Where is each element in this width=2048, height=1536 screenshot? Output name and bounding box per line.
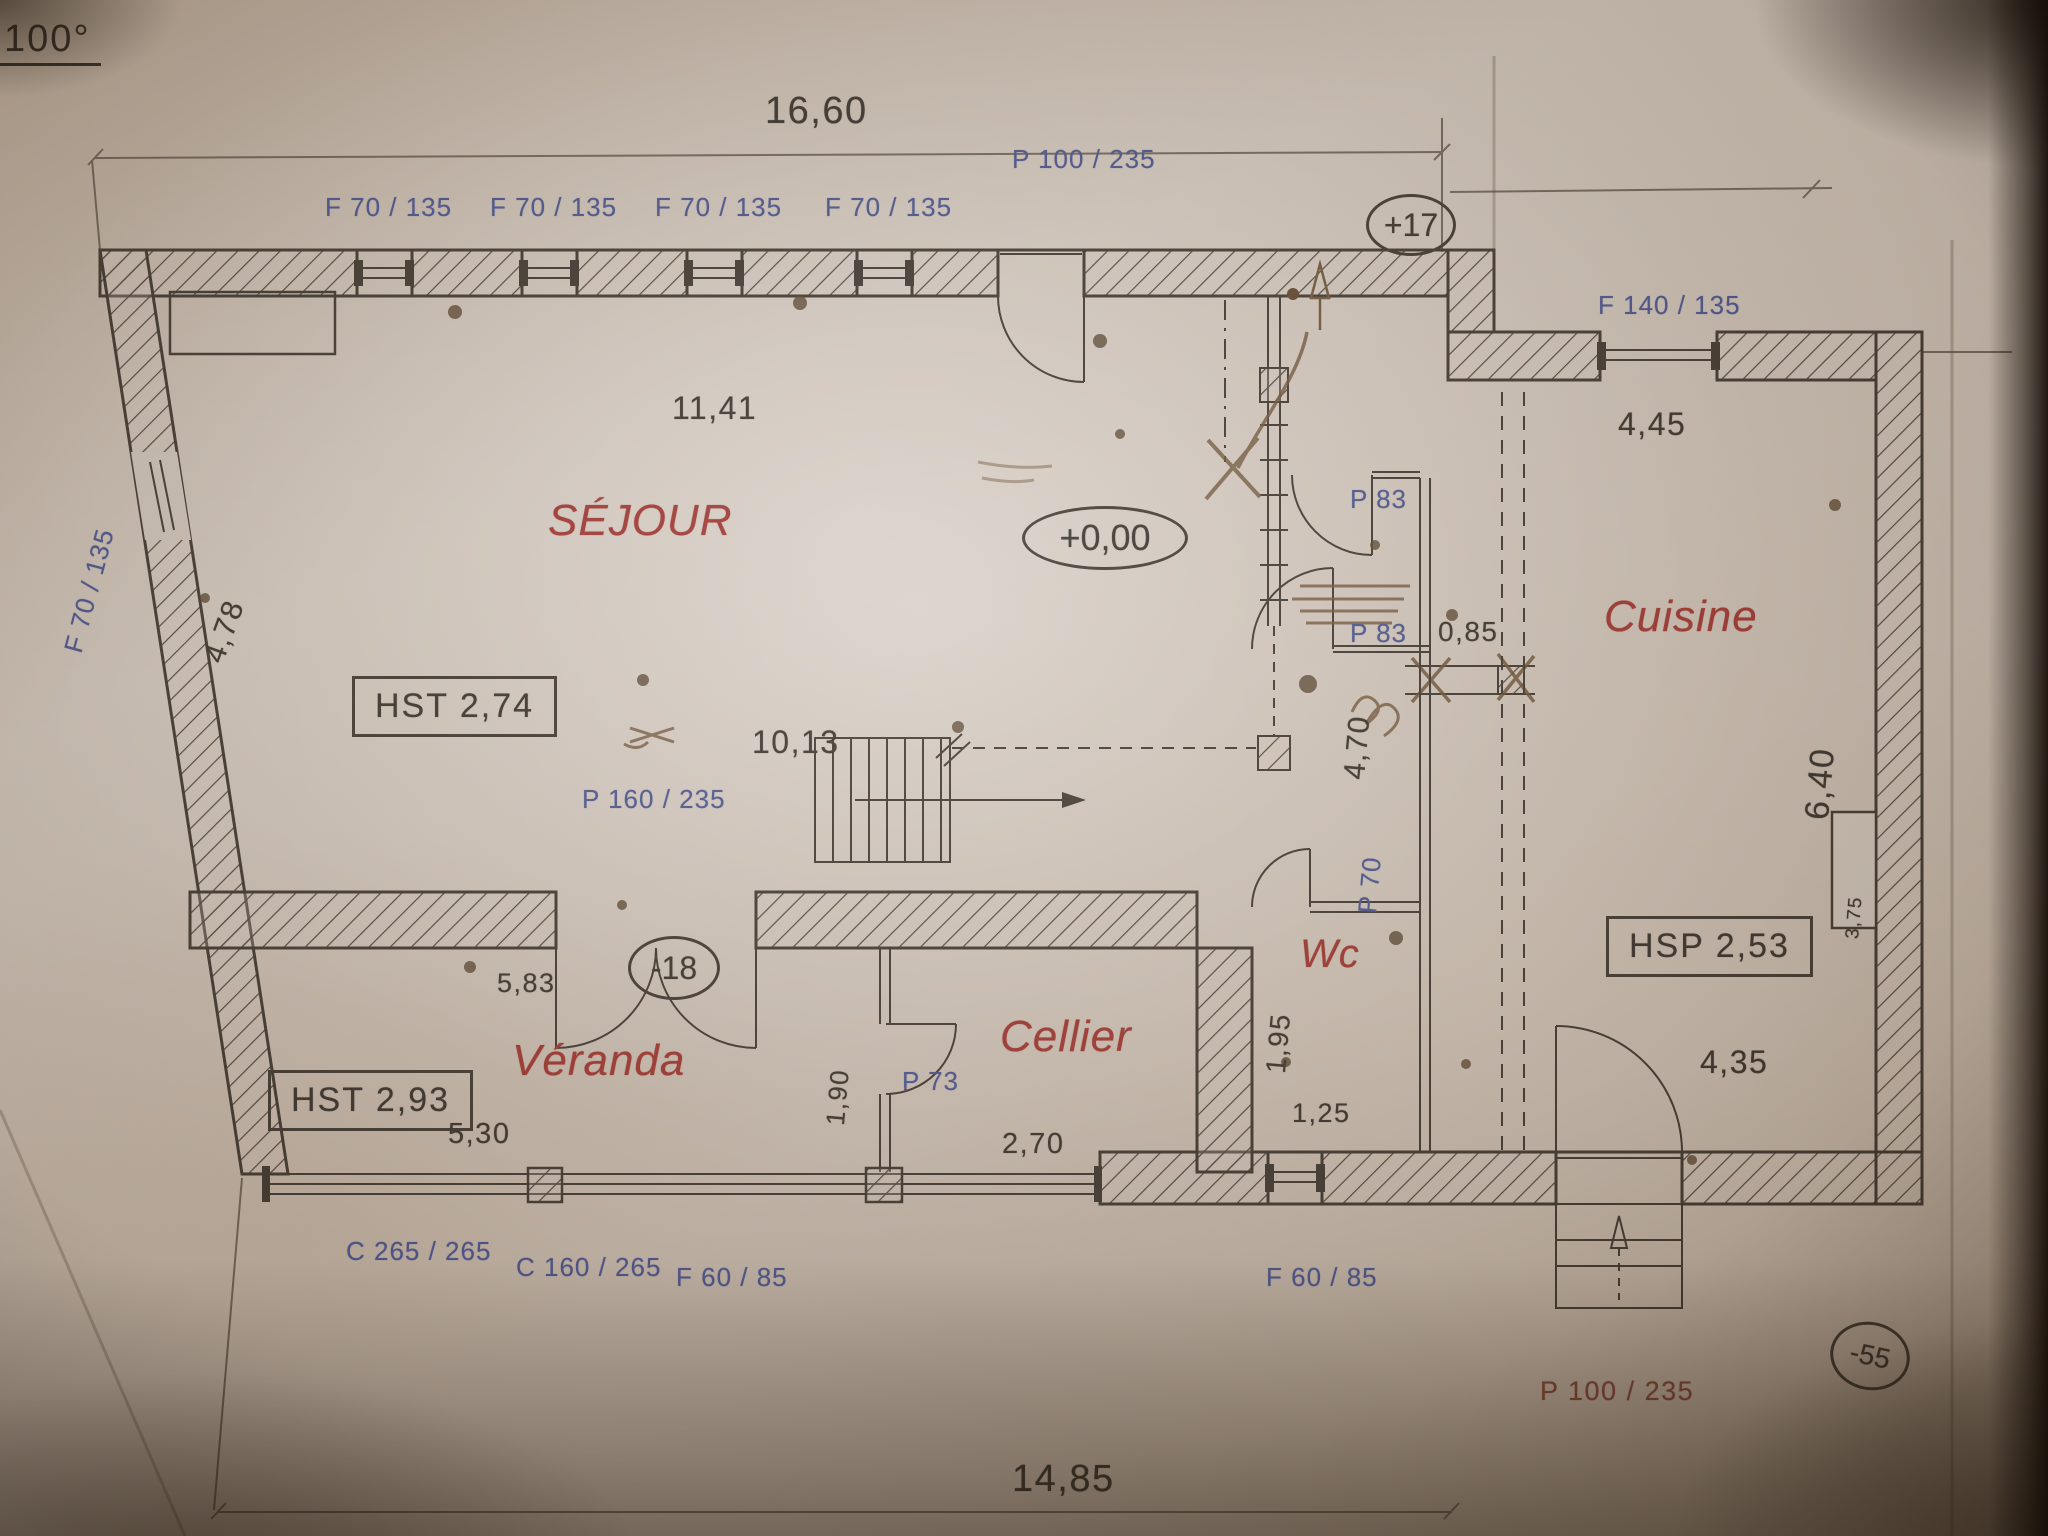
front-window-1-label: F 60 / 85 (676, 1262, 788, 1293)
top-window-label-4: F 70 / 135 (825, 192, 952, 223)
dim-overall-top: 16,60 (765, 90, 868, 133)
left-window (131, 452, 191, 540)
height-box-sejour: HST 2,74 (352, 676, 557, 737)
level-badge-veranda: -18 (628, 936, 720, 1000)
veranda-glazing (262, 1166, 1102, 1202)
level-badge-entry: +17 (1366, 194, 1456, 256)
dim-hall: 4,70 (1338, 714, 1377, 781)
dim-cuisine-bottom: 4,35 (1700, 1044, 1768, 1081)
height-box-veranda: HST 2,93 (268, 1070, 473, 1131)
dim-cellier-side: 1,90 (820, 1068, 856, 1127)
scale-note: 100° (0, 18, 101, 66)
dimension-lines (88, 118, 2012, 1519)
dim-veranda-front: 5,30 (448, 1118, 510, 1151)
dim-cuisine-right: 6,40 (1798, 746, 1843, 821)
dim-overall-bottom: 14,85 (1012, 1458, 1115, 1501)
veranda-glazing-2-label: C 160 / 265 (516, 1252, 661, 1283)
front-window-2-label: F 60 / 85 (1266, 1262, 1378, 1293)
cellier-door-label: P 73 (902, 1066, 959, 1097)
dim-sejour-wall: 11,41 (672, 390, 757, 427)
cuisine-dashed-partition (1502, 392, 1524, 1150)
dim-hall-gap: 0,85 (1438, 616, 1499, 648)
back-door-label: P 100 / 235 (1540, 1376, 1694, 1407)
fireplace (170, 292, 335, 354)
dim-veranda-left: 5,83 (497, 968, 556, 999)
hall-door-2-label: P 83 (1350, 618, 1407, 649)
entry-door-label: P 100 / 235 (1012, 144, 1156, 175)
room-label-cellier: Cellier (1000, 1012, 1132, 1062)
dim-wc-front: 1,25 (1292, 1098, 1351, 1129)
level-badge-ground: +0,00 (1022, 506, 1188, 570)
room-label-cuisine: Cuisine (1604, 592, 1758, 642)
entry-door (998, 254, 1084, 382)
dim-sejour-inner: 10,13 (752, 724, 840, 761)
hall-east-wall (1420, 478, 1430, 1152)
height-box-cuisine: HSP 2,53 (1606, 916, 1813, 977)
wc-walls (1252, 849, 1420, 912)
hall-door-1-label: P 83 (1350, 484, 1407, 515)
back-door-porch (1556, 1026, 1682, 1308)
sejour-hall-partition (1258, 296, 1290, 770)
top-window-label-1: F 70 / 135 (325, 192, 452, 223)
demolition-wall (1405, 654, 1535, 702)
top-window-label-3: F 70 / 135 (655, 192, 782, 223)
room-label-veranda: Véranda (512, 1036, 685, 1086)
wc-door-label: P 70 (1352, 855, 1388, 915)
wide-window-label: F 140 / 135 (1598, 290, 1741, 321)
dim-cuisine-flue: 3,75 (1842, 895, 1868, 940)
room-label-wc: Wc (1300, 932, 1360, 977)
veranda-glazing-1-label: C 265 / 265 (346, 1236, 491, 1267)
dim-cuisine-top: 4,45 (1618, 406, 1686, 443)
floor-plan-drawing (0, 0, 2048, 1536)
room-label-sejour: SÉJOUR (548, 496, 732, 546)
dim-wc-side: 1,95 (1260, 1012, 1297, 1075)
top-window-label-2: F 70 / 135 (490, 192, 617, 223)
dim-cellier-front: 2,70 (1002, 1128, 1064, 1161)
stairs (815, 734, 1256, 862)
floor-plan-photo: 100° 16,60 P 100 / 235 +17 F 140 / 135 F… (0, 0, 2048, 1536)
sejour-double-door-label: P 160 / 235 (582, 784, 726, 815)
